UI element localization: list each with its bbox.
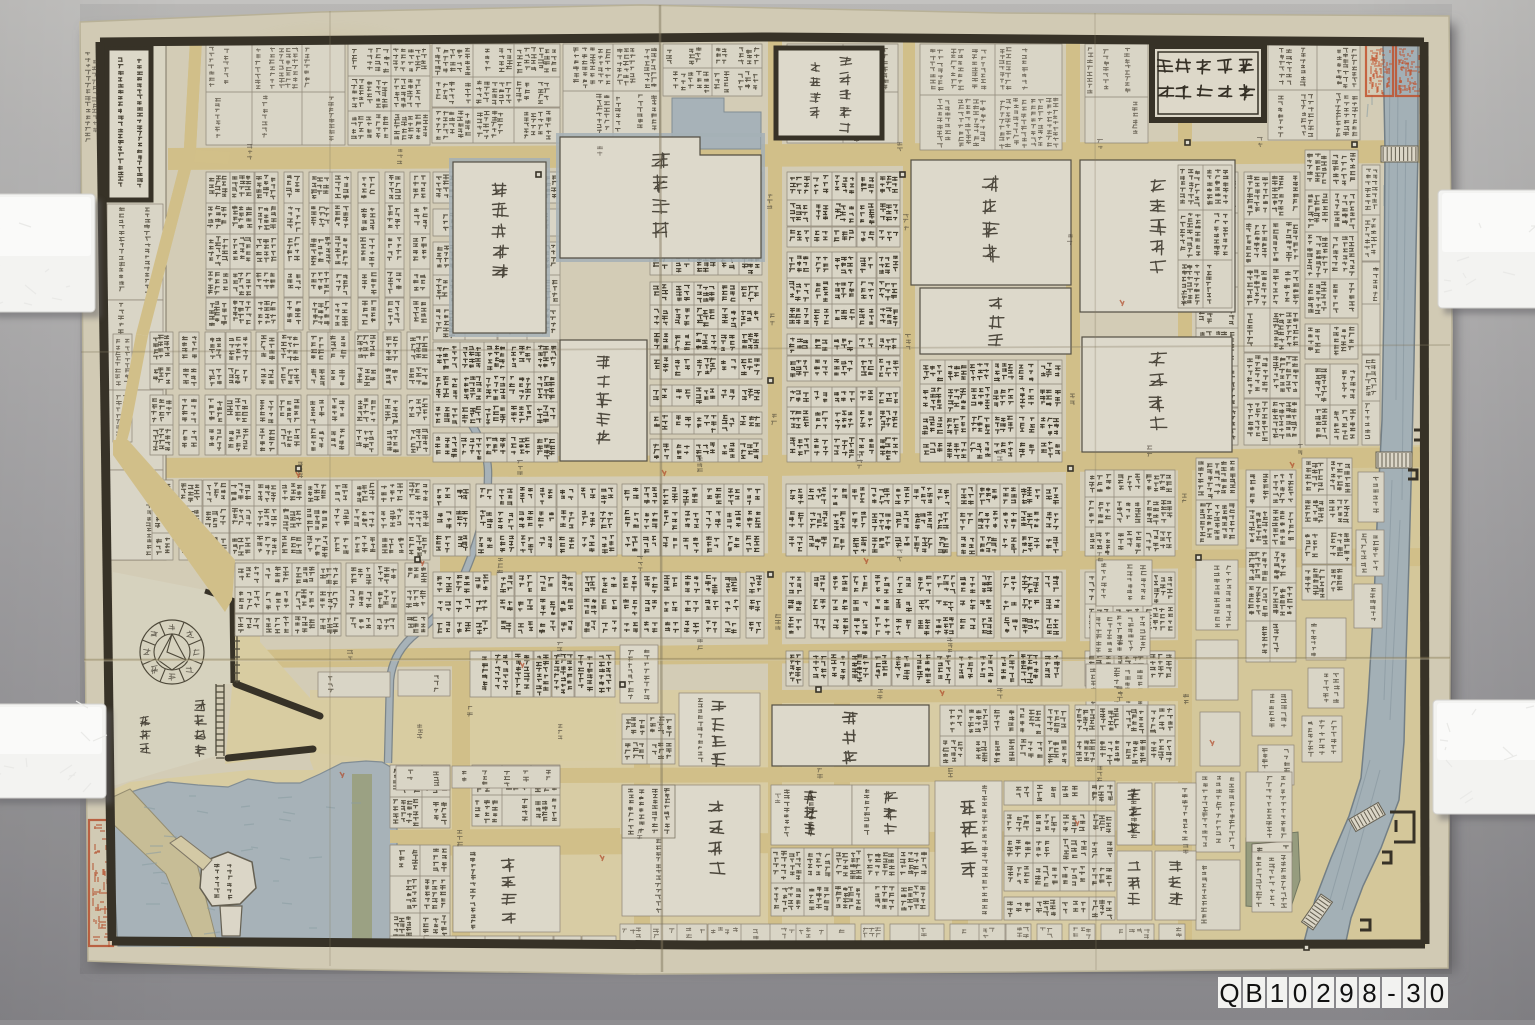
svg-text:0: 0	[1430, 978, 1444, 1008]
svg-text:1: 1	[1270, 978, 1284, 1008]
svg-text:0: 0	[1293, 978, 1307, 1008]
svg-text:3: 3	[1406, 978, 1420, 1008]
svg-text:9: 9	[1339, 978, 1353, 1008]
svg-text:-: -	[1387, 978, 1396, 1008]
svg-text:2: 2	[1316, 978, 1330, 1008]
svg-text:B: B	[1245, 978, 1262, 1008]
svg-text:8: 8	[1362, 978, 1376, 1008]
svg-text:Q: Q	[1219, 978, 1239, 1008]
